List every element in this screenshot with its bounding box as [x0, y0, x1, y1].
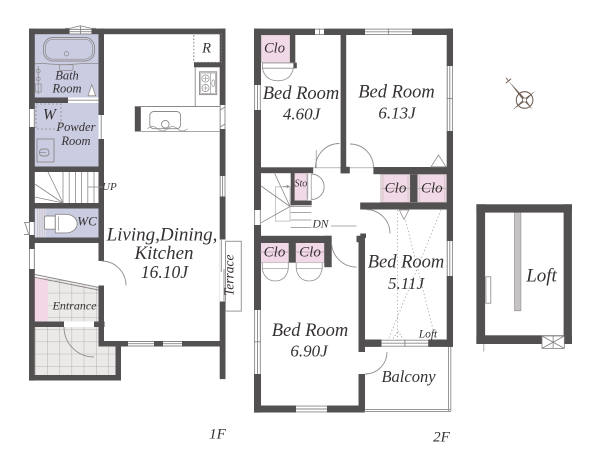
- svg-text:Kitchen: Kitchen: [133, 243, 193, 264]
- svg-text:Loft: Loft: [525, 266, 557, 287]
- svg-text:Bed Room: Bed Room: [272, 321, 349, 341]
- svg-text:Balcony: Balcony: [381, 367, 436, 386]
- svg-text:Loft: Loft: [418, 329, 438, 341]
- svg-text:6.90J: 6.90J: [290, 342, 329, 361]
- svg-text:Clo: Clo: [421, 181, 443, 197]
- svg-text:2F: 2F: [433, 430, 451, 446]
- svg-text:1F: 1F: [209, 427, 227, 443]
- svg-text:6.13J: 6.13J: [378, 104, 417, 123]
- svg-text:Bed Room: Bed Room: [368, 253, 445, 273]
- svg-text:Clo: Clo: [385, 181, 407, 197]
- svg-text:5.11J: 5.11J: [388, 274, 425, 293]
- svg-text:Entrance: Entrance: [52, 299, 98, 313]
- svg-text:Bath: Bath: [55, 69, 79, 83]
- svg-text:Powder: Powder: [56, 120, 96, 134]
- svg-text:Bed Room: Bed Room: [263, 84, 340, 104]
- svg-text:UP: UP: [102, 181, 117, 193]
- svg-text:Clo: Clo: [264, 245, 286, 261]
- svg-text:Room: Room: [51, 82, 81, 96]
- svg-text:DN: DN: [312, 219, 330, 231]
- svg-text:Clo: Clo: [264, 41, 285, 57]
- svg-text:R: R: [201, 41, 211, 57]
- svg-text:Clo: Clo: [299, 245, 321, 261]
- svg-text:16.10J: 16.10J: [141, 262, 189, 282]
- svg-text:Bed Room: Bed Room: [358, 83, 435, 103]
- svg-text:Terrace: Terrace: [222, 255, 237, 297]
- svg-text:WC: WC: [77, 214, 97, 229]
- svg-text:4.60J: 4.60J: [283, 105, 322, 124]
- svg-text:Room: Room: [60, 134, 90, 148]
- svg-text:Sto: Sto: [295, 179, 308, 190]
